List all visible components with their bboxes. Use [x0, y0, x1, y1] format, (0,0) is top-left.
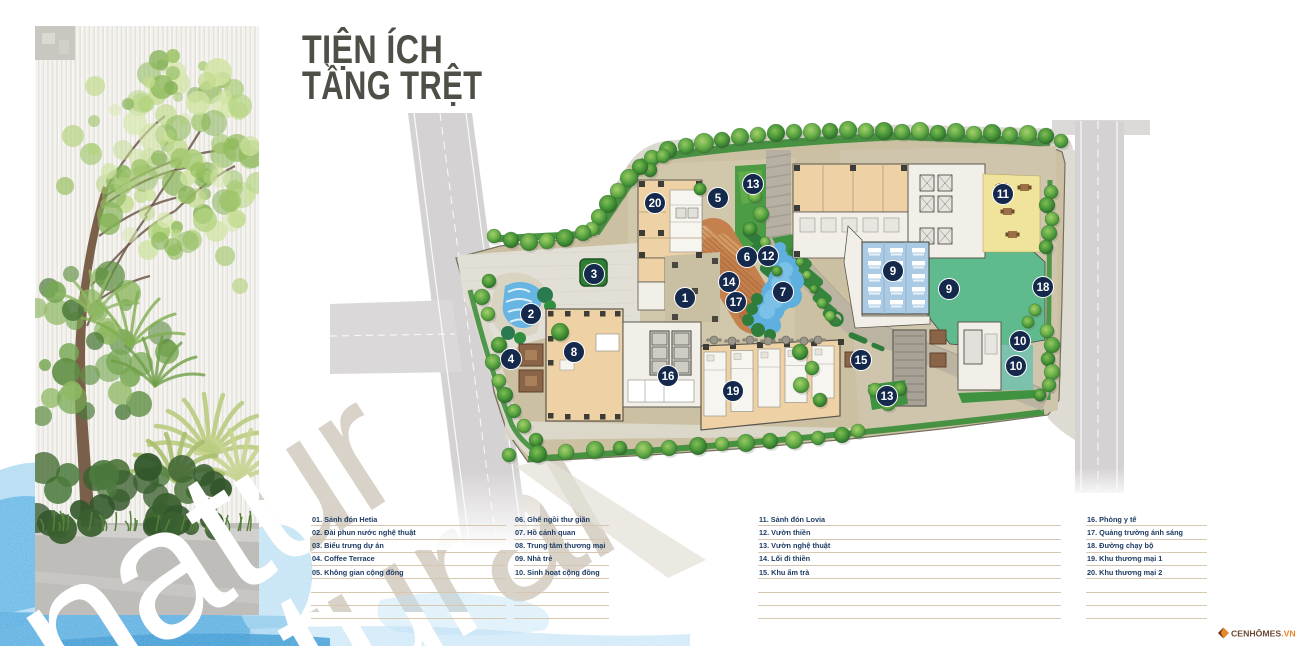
svg-text:CENHÔMES.VN: CENHÔMES.VN [1231, 628, 1296, 639]
